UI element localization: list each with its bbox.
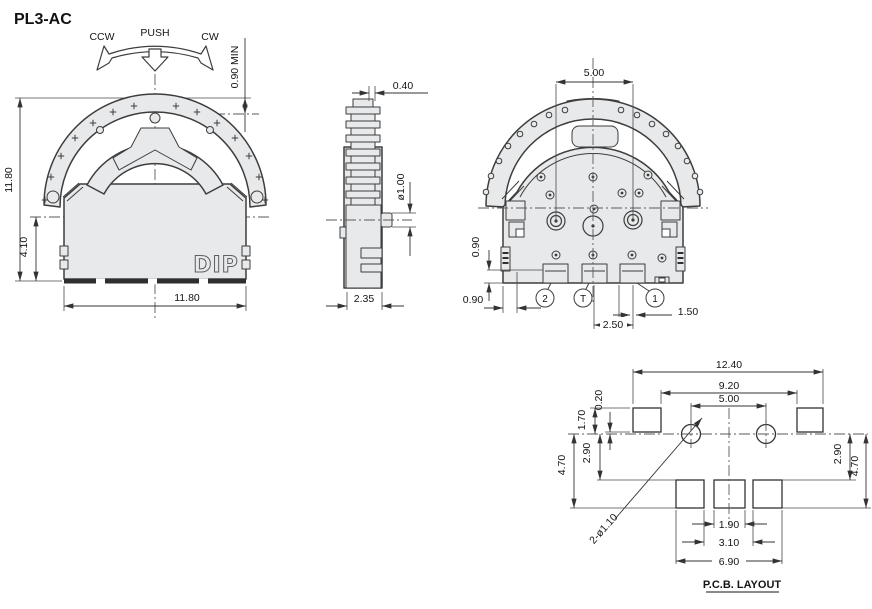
terminal-callouts: 2 T 1 (536, 283, 664, 307)
svg-text:2.50: 2.50 (603, 319, 624, 331)
back-view: 5.00 0.90 0.90 2 T 1 (463, 58, 708, 331)
terminal-gap-3 (199, 278, 208, 284)
svg-text:0.90: 0.90 (470, 237, 482, 258)
back-side-clip-right (676, 247, 685, 271)
side-bottom-slot-a (361, 248, 382, 258)
dim-pcb-total-right: 4.70 (782, 434, 871, 508)
svg-text:1.70: 1.70 (576, 410, 588, 431)
svg-text:2.35: 2.35 (354, 293, 375, 305)
technical-drawing: PL3-AC CCW PUSH CW (0, 0, 872, 609)
dim-pcb-total-left: 4.70 (556, 434, 676, 508)
svg-text:1.50: 1.50 (678, 306, 699, 318)
svg-text:6.90: 6.90 (719, 556, 740, 568)
dim-pcb-pad-height: 1.70 (576, 408, 630, 434)
svg-text:1.90: 1.90 (719, 519, 740, 531)
svg-text:2: 2 (542, 294, 548, 305)
svg-text:0.20: 0.20 (593, 390, 605, 411)
pcb-layout: 12.40 9.20 5.00 0.20 1.70 2.90 (556, 359, 871, 592)
svg-text:4.10: 4.10 (18, 237, 30, 258)
side-clip-right-b (242, 260, 250, 269)
push-label: PUSH (140, 27, 169, 39)
svg-text:2-ø1.10: 2-ø1.10 (587, 511, 620, 546)
back-bottom-notch-slot (659, 278, 665, 282)
mount-bracket-left (506, 201, 525, 237)
svg-text:2.90: 2.90 (832, 444, 844, 465)
dim-shaft-diameter: ø1.00 (392, 173, 416, 256)
dip-marking: DIP (193, 253, 239, 278)
svg-text:1: 1 (652, 294, 658, 305)
side-knob-serrations (346, 99, 380, 205)
side-bottom-slot-b (361, 264, 382, 272)
pcb-pad-top-right (797, 408, 823, 432)
pcb-pad-top-left (633, 408, 661, 432)
wheel-end-roller-left (47, 191, 59, 203)
svg-text:4.70: 4.70 (556, 455, 568, 476)
svg-text:9.20: 9.20 (719, 380, 740, 392)
back-side-clip-left (501, 247, 510, 271)
side-clip-left-a (60, 246, 68, 256)
terminal-gap-2 (148, 278, 157, 284)
back-terminals (543, 264, 645, 283)
push-plunger (572, 126, 618, 147)
svg-text:0.90 MIN: 0.90 MIN (229, 46, 241, 89)
side-clip-left-b (60, 260, 68, 269)
dim-pcb-hole-pitch: 5.00 (691, 393, 766, 423)
terminal-gap-1 (96, 278, 105, 284)
svg-text:11.80: 11.80 (3, 167, 15, 193)
front-view: CCW PUSH CW (3, 27, 272, 318)
pcb-pad-bottom-left (676, 480, 704, 508)
dim-pcb-mid-left: 2.90 (581, 434, 676, 480)
wheel-end-roller-right (251, 191, 263, 203)
wheel-pivot-hole (150, 113, 160, 123)
dim-pcb-slot-width: 1.90 (692, 510, 767, 531)
pcb-pad-bottom-right (753, 480, 782, 508)
svg-text:ø1.00: ø1.00 (395, 173, 407, 200)
dim-knob-protrusion: 0.90 MIN (229, 38, 245, 132)
svg-text:5.00: 5.00 (584, 67, 605, 79)
pcb-layout-caption: P.C.B. LAYOUT (703, 579, 782, 591)
drawing-sheet: PL3-AC CCW PUSH CW (0, 0, 872, 609)
svg-text:T: T (580, 294, 586, 305)
dim-front-body-height: 4.10 (18, 217, 36, 281)
svg-text:5.00: 5.00 (719, 393, 740, 405)
ccw-label: CCW (89, 31, 114, 43)
dim-pcb-pad-offset: 0.20 (593, 390, 630, 450)
dim-terminal-pitch: 2.50 (594, 285, 633, 331)
side-view: 0.40 ø1.00 2.35 (326, 80, 428, 310)
svg-text:0.40: 0.40 (393, 80, 414, 92)
dim-knob-tip: 0.40 (352, 80, 428, 101)
wheel-roller-left (97, 127, 104, 134)
svg-text:0.90: 0.90 (463, 294, 484, 306)
side-body-block (346, 205, 381, 288)
side-clip-right-a (242, 246, 250, 256)
svg-text:2.90: 2.90 (581, 443, 593, 464)
mount-bracket-right (661, 201, 680, 237)
part-number-title: PL3-AC (14, 11, 72, 28)
wheel-roller-right (207, 127, 214, 134)
side-left-tab (340, 227, 346, 238)
svg-text:4.70: 4.70 (849, 456, 861, 477)
svg-text:11.80: 11.80 (174, 292, 200, 304)
pcb-pad-bottom-mid (714, 480, 745, 508)
dim-pcb-mid-right: 2.90 (782, 434, 856, 480)
svg-text:12.40: 12.40 (716, 359, 742, 371)
svg-text:3.10: 3.10 (719, 537, 740, 549)
dim-depth: 2.35 (326, 292, 404, 310)
cw-label: CW (201, 31, 219, 43)
